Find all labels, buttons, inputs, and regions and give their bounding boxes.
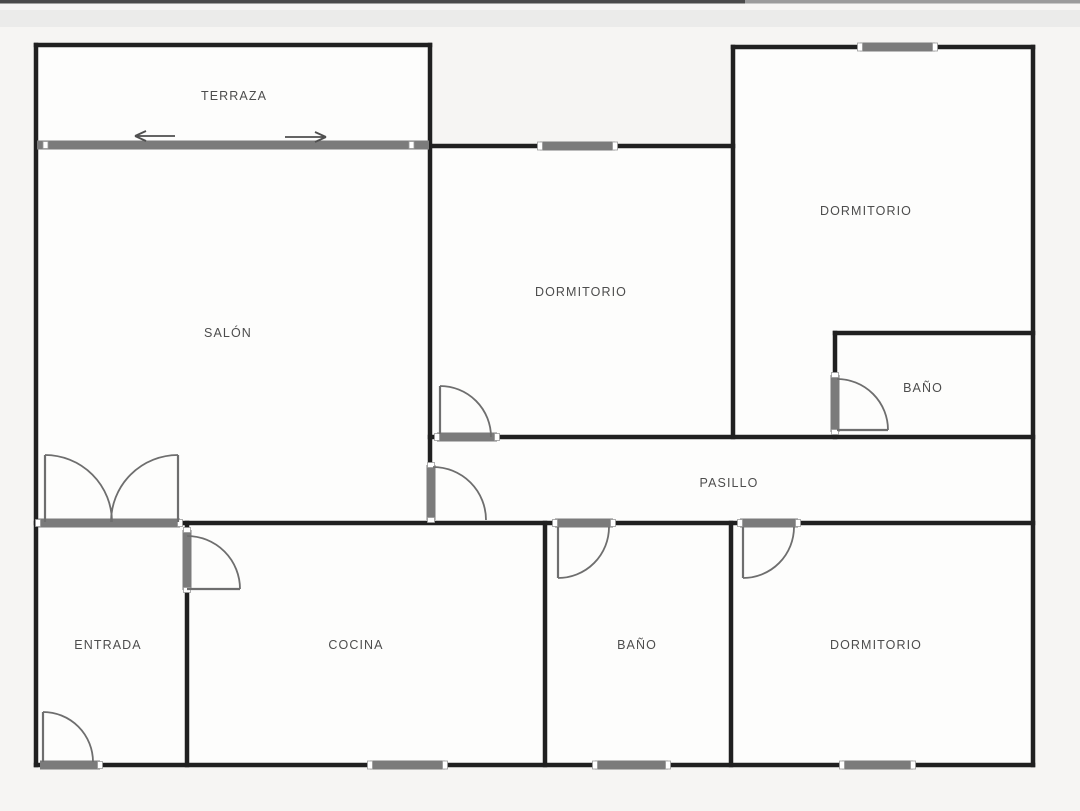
room-label-bano-dcha: BAÑO bbox=[903, 381, 943, 395]
room-label-dormitorio-inferior: DORMITORIO bbox=[830, 638, 922, 652]
room-label-entrada: ENTRADA bbox=[74, 638, 141, 652]
room-label-terraza: TERRAZA bbox=[201, 89, 267, 103]
room-label-dormitorio-sup-dcha: DORMITORIO bbox=[820, 204, 912, 218]
window-bano-inferior bbox=[593, 761, 671, 770]
room-label-pasillo: PASILLO bbox=[700, 476, 759, 490]
room-label-bano-inferior: BAÑO bbox=[617, 638, 657, 652]
window-cocina bbox=[368, 761, 448, 770]
room-label-salon: SALÓN bbox=[204, 326, 252, 340]
scan-artifact-strips bbox=[0, 0, 1080, 27]
window-dormitorio-sup-dcha bbox=[858, 43, 938, 52]
room-label-cocina: COCINA bbox=[328, 638, 383, 652]
floor-plan-drawing bbox=[0, 0, 1080, 811]
window-dormitorio-centro bbox=[538, 142, 618, 151]
floor-plan-image: TERRAZA SALÓN DORMITORIO DORMITORIO BAÑO… bbox=[0, 0, 1080, 811]
room-label-dormitorio-centro: DORMITORIO bbox=[535, 285, 627, 299]
window-dormitorio-inferior bbox=[840, 761, 916, 770]
